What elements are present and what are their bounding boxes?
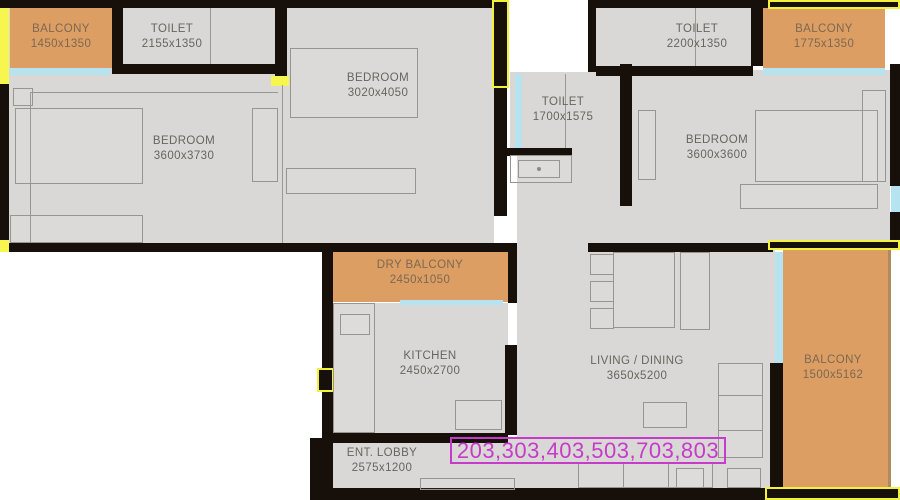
side-table-living xyxy=(727,468,761,488)
room-label-balcony-top-right: BALCONY 1775x1350 xyxy=(794,22,855,52)
wall-living-balcony xyxy=(770,363,783,490)
marked-wall-top-right xyxy=(768,0,900,9)
dining-chair xyxy=(590,281,614,302)
room-dims: 2450x1050 xyxy=(377,273,463,288)
room-name: ENT. LOBBY xyxy=(347,446,417,461)
marked-wall-bottom-right xyxy=(765,487,900,500)
dining-bench xyxy=(680,252,710,330)
wall-center-bedroom-right xyxy=(494,86,507,216)
dining-table xyxy=(613,252,675,328)
room-label-balcony-right: BALCONY 1500x5162 xyxy=(803,353,864,383)
room-label-bedroom-left: BEDROOM 3600x3730 xyxy=(153,134,215,164)
shelf-right-bedroom xyxy=(740,184,878,209)
window-under-balcony-top-left xyxy=(10,68,110,75)
wall-left-outer xyxy=(0,78,9,246)
room-dims: 2155x1350 xyxy=(142,37,203,52)
dining-chair xyxy=(590,254,614,275)
room-name: BEDROOM xyxy=(153,134,215,149)
room-name: KITCHEN xyxy=(400,349,461,364)
wall-toilet-balcony-top-right xyxy=(751,8,763,66)
window-marker-kitchen xyxy=(317,368,334,392)
room-name: TOILET xyxy=(667,22,728,37)
room-label-bedroom-right: BEDROOM 3600x3600 xyxy=(686,133,748,163)
coffee-table xyxy=(643,402,687,428)
room-label-toilet-top-left: TOILET 2155x1350 xyxy=(142,22,203,52)
window-living-to-balcony xyxy=(775,252,783,365)
sofa-seat-line xyxy=(668,462,669,488)
wall-lobby-left xyxy=(310,438,322,490)
room-dims: 2450x2700 xyxy=(400,364,461,379)
room-name: BALCONY xyxy=(31,22,92,37)
room-name: DRY BALCONY xyxy=(377,258,463,273)
cabinet-left-bedroom xyxy=(252,108,278,182)
kitchen-counter xyxy=(455,400,502,430)
wall-kitchen-right xyxy=(505,345,517,435)
wall-left-center-bedroom xyxy=(275,0,287,78)
floor-center-bedroom xyxy=(284,5,494,245)
balcony-right-edge-line xyxy=(888,250,891,488)
wall-right-outer-upper xyxy=(890,64,900,186)
room-name: LIVING / DINING xyxy=(590,354,684,369)
room-label-bedroom-top-center: BEDROOM 3020x4050 xyxy=(347,71,409,101)
washbasin-drain xyxy=(537,167,541,171)
room-dims: 3650x5200 xyxy=(590,369,684,384)
room-dims: 1700x1575 xyxy=(533,110,594,125)
side-table-living xyxy=(676,468,704,488)
tv-unit-shelf-line xyxy=(718,395,763,396)
room-name: TOILET xyxy=(533,95,594,110)
lobby-mat xyxy=(420,478,515,490)
room-label-dry-balcony: DRY BALCONY 2450x1050 xyxy=(377,258,463,288)
side-table-left-bedroom xyxy=(13,88,33,106)
window-marker-left-bottom xyxy=(0,240,9,252)
room-label-kitchen: KITCHEN 2450x2700 xyxy=(400,349,461,379)
room-dims: 3600x3600 xyxy=(686,148,748,163)
room-dims: 2200x1350 xyxy=(667,37,728,52)
room-dims: 1500x5162 xyxy=(803,368,864,383)
wall-right-bedroom-bottom xyxy=(588,243,773,252)
unit-numbers-annotation: 203,303,403,503,703,803 xyxy=(450,437,726,464)
window-right-bedroom xyxy=(891,184,900,214)
room-name: BALCONY xyxy=(803,353,864,368)
room-label-toilet-middle: TOILET 1700x1575 xyxy=(533,95,594,125)
dresser-center-bedroom xyxy=(286,168,416,194)
wardrobe-right-bedroom xyxy=(638,110,656,180)
marked-wall-above-right-balcony xyxy=(768,240,900,250)
wall-under-toilet-top-left xyxy=(112,64,282,74)
room-dims: 3020x4050 xyxy=(347,86,409,101)
bed-left-bedroom xyxy=(15,108,143,184)
window-under-dry-balcony xyxy=(400,300,503,305)
room-dims: 3600x3730 xyxy=(153,149,215,164)
sofa-seat-line xyxy=(623,462,624,488)
dining-chair xyxy=(590,308,614,329)
room-label-living-dining: LIVING / DINING 3650x5200 xyxy=(590,354,684,384)
kitchen-sink xyxy=(340,314,370,335)
room-label-balcony-top-left: BALCONY 1450x1350 xyxy=(31,22,92,52)
floor-plan: BALCONY 1450x1350 TOILET 2155x1350 BEDRO… xyxy=(0,0,900,500)
wall-notch-right xyxy=(588,0,596,72)
wardrobe-left-bedroom xyxy=(10,215,143,243)
room-name: TOILET xyxy=(142,22,203,37)
room-name: BEDROOM xyxy=(347,71,409,86)
window-middle-toilet xyxy=(515,74,522,150)
partition-toilet-top-left xyxy=(210,8,211,64)
cabinet-right-bedroom xyxy=(862,90,886,182)
wall-balcony-toilet-divider xyxy=(112,0,123,68)
room-label-entrance-lobby: ENT. LOBBY 2575x1200 xyxy=(347,446,417,476)
room-name: BEDROOM xyxy=(686,133,748,148)
room-dims: 2575x1200 xyxy=(347,461,417,476)
window-under-balcony-top-right xyxy=(763,68,885,75)
room-dims: 1450x1350 xyxy=(31,37,92,52)
tv-unit-shelf-line xyxy=(718,430,763,431)
marked-wall-center-bedroom xyxy=(492,0,509,88)
room-label-toilet-top-right: TOILET 2200x1350 xyxy=(667,22,728,52)
wall-finish-line xyxy=(30,92,278,93)
wall-right-bedroom-left xyxy=(620,64,632,206)
partition-bedrooms xyxy=(282,85,283,243)
wall-left-block-bottom xyxy=(0,243,517,252)
window-marker-left-top xyxy=(0,8,9,84)
room-dims: 1775x1350 xyxy=(794,37,855,52)
wall-top-left xyxy=(0,0,508,8)
window-marker-wall-tip xyxy=(271,76,289,86)
room-name: BALCONY xyxy=(794,22,855,37)
bed-right-bedroom xyxy=(755,110,878,182)
wall-dry-balcony-right xyxy=(508,243,517,303)
